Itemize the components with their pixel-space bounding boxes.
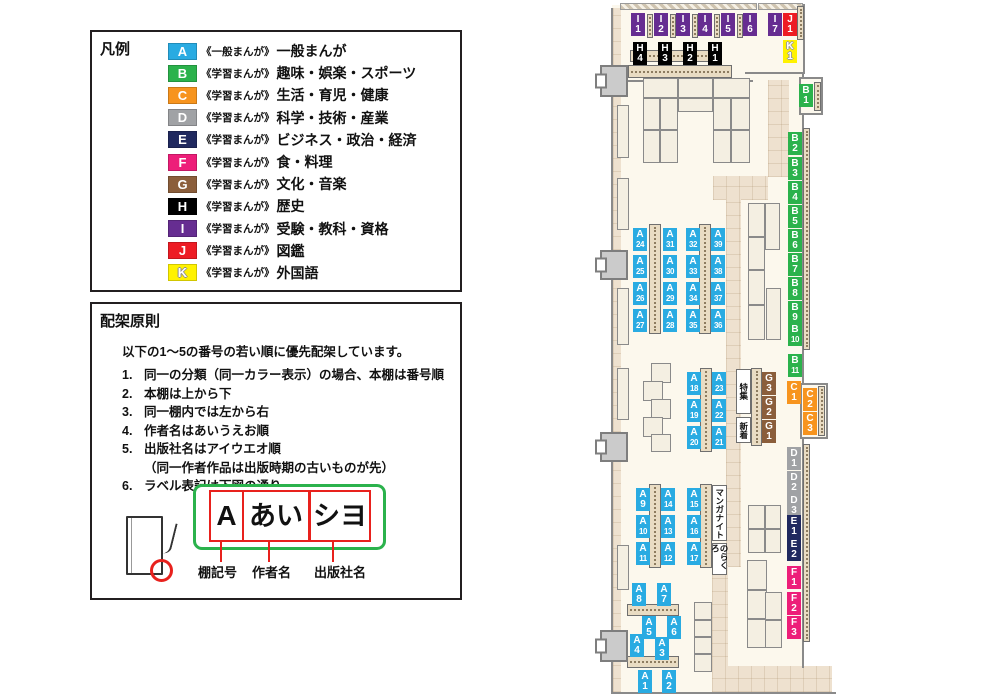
legend-category-label: 科学・技術・産業 — [277, 108, 389, 128]
map-sign: 新着 — [736, 417, 751, 443]
legend-row-A: A《一般まんが》一般まんが — [168, 40, 417, 62]
shelf-label-A39: A39 — [711, 228, 725, 251]
legend-panel: 凡例 A《一般まんが》一般まんがB《学習まんが》趣味・娯楽・スポーツC《学習まん… — [90, 30, 462, 292]
category-chip-J: J — [168, 242, 197, 259]
book-icon — [126, 516, 163, 575]
shelf-label-A24: A24 — [633, 228, 647, 251]
shelf-label-A2: A2 — [662, 670, 676, 693]
shelf-label-A22: A22 — [712, 399, 726, 422]
wall — [745, 72, 803, 74]
shelf-unit — [643, 130, 660, 163]
legend-row-D: D《学習まんが》科学・技術・産業 — [168, 107, 417, 129]
shelf-unit — [748, 203, 765, 237]
shelf-label-I7: I7 — [768, 13, 782, 36]
legend-category-label: ビジネス・政治・経済 — [277, 130, 417, 150]
shelf-unit — [617, 105, 629, 158]
shelf-label-A3: A3 — [655, 637, 669, 660]
category-chip-D: D — [168, 109, 197, 126]
category-chip-G: G — [168, 176, 197, 193]
shelf-label-A20: A20 — [687, 426, 701, 449]
shelf-unit — [748, 305, 765, 340]
shelf-label-A12: A12 — [661, 542, 675, 565]
shelf-unit — [713, 98, 731, 130]
shelf-label-E1: E1 — [787, 515, 801, 538]
legend-category-label: 文化・音楽 — [277, 174, 347, 194]
rule-text: ラベル表記は下図の通り — [144, 477, 282, 496]
legend-prefix: 《一般まんが》 — [201, 44, 275, 59]
shelf-unit — [617, 288, 629, 345]
category-chip-C: C — [168, 87, 197, 104]
shelf-label-A8: A8 — [632, 583, 646, 606]
shelf-label-D1: D1 — [787, 447, 801, 470]
legend-category-label: 受験・教科・資格 — [277, 219, 389, 239]
shelf-label-A16: A16 — [687, 515, 701, 538]
rule-item-5: 5.出版社名はアイウエオ順 — [122, 440, 452, 459]
bookshelf-strip — [649, 484, 661, 568]
bookshelf-strip — [803, 128, 810, 350]
shelf-label-B8: B8 — [788, 277, 802, 300]
shelf-unit — [694, 620, 712, 637]
shelf-unit — [766, 288, 781, 340]
shelf-label-I3: I3 — [676, 13, 690, 36]
shelf-label-A1: A1 — [638, 670, 652, 693]
shelf-label-A37: A37 — [711, 282, 725, 305]
shelf-label-A9: A9 — [636, 488, 650, 511]
shelf-unit — [713, 130, 731, 163]
legend-row-H: H《学習まんが》歴史 — [168, 195, 417, 217]
shelf-label-F2: F2 — [787, 592, 801, 615]
legend-category-label: 食・料理 — [277, 152, 333, 172]
rule-text: 作者名はあいうえお順 — [144, 422, 269, 441]
caption-line — [220, 540, 222, 562]
category-chip-B: B — [168, 65, 197, 82]
rule-text: 本棚は上から下 — [144, 385, 232, 404]
label-example-box-1: A — [209, 490, 244, 542]
category-chip-I: I — [168, 220, 197, 237]
shelf-unit — [678, 98, 713, 112]
shelf-label-A15: A15 — [687, 488, 701, 511]
shelf-label-A17: A17 — [687, 542, 701, 565]
shelf-label-G3: G3 — [762, 372, 776, 395]
shelf-unit — [748, 529, 765, 553]
shelf-label-A32: A32 — [686, 228, 700, 251]
bookshelf-strip — [699, 224, 711, 334]
shelf-unit — [731, 98, 750, 130]
shelf-label-A28: A28 — [663, 309, 677, 332]
shelf-label-A30: A30 — [663, 255, 677, 278]
bookshelf-strip — [814, 82, 821, 111]
rule-subtext: （同一作者作品は出版時期の古いものが先） — [144, 459, 452, 478]
category-chip-A: A — [168, 43, 197, 60]
rule-number: 6. — [122, 477, 144, 496]
shelf-label-F1: F1 — [787, 566, 801, 589]
legend-prefix: 《学習まんが》 — [201, 155, 275, 170]
shelf-unit — [643, 381, 663, 401]
rule-number: 1. — [122, 366, 144, 385]
label-example-box-3: シヨ — [309, 490, 371, 542]
shelf-label-A5: A5 — [642, 616, 656, 639]
shelf-unit — [747, 560, 767, 590]
wall-hatched — [620, 3, 757, 10]
floor-walkway — [712, 565, 728, 670]
shelf-label-B11: B11 — [788, 354, 802, 377]
shelf-unit — [617, 368, 629, 420]
legend-row-G: G《学習まんが》文化・音楽 — [168, 173, 417, 195]
legend-category-label: 生活・育児・健康 — [277, 85, 389, 105]
shelf-label-H4: H4 — [633, 42, 647, 65]
shelf-label-H2: H2 — [683, 42, 697, 65]
floor-map: 特集新着マンガナイトのらくろI1I2I3I4I5I6I7J1K1H4H3H2H1… — [595, 0, 845, 700]
shelf-label-D3: D3 — [787, 494, 801, 517]
rule-text: 同一の分類（同一カラー表示）の場合、本棚は番号順 — [144, 366, 444, 385]
bookshelf-strip — [797, 6, 804, 40]
shelf-unit — [765, 592, 782, 620]
shelf-label-A26: A26 — [633, 282, 647, 305]
door — [600, 65, 628, 97]
caption-3: 出版社名 — [314, 562, 366, 581]
bookshelf-strip — [700, 368, 712, 452]
legend-row-J: J《学習まんが》図鑑 — [168, 240, 417, 262]
shelf-unit — [765, 505, 781, 529]
shelf-label-C2: C2 — [803, 388, 817, 411]
shelf-unit — [748, 237, 765, 270]
legend-row-K: K《学習まんが》外国語 — [168, 262, 417, 284]
category-chip-H: H — [168, 198, 197, 215]
rule-item-3: 3.同一棚内では左から右 — [122, 403, 452, 422]
legend-row-C: C《学習まんが》生活・育児・健康 — [168, 84, 417, 106]
shelf-label-A31: A31 — [663, 228, 677, 251]
legend-prefix: 《学習まんが》 — [201, 132, 275, 147]
rule-text: 出版社名はアイウエオ順 — [144, 440, 281, 459]
shelf-label-B5: B5 — [788, 205, 802, 228]
legend-prefix: 《学習まんが》 — [201, 265, 275, 280]
legend-category-label: 趣味・娯楽・スポーツ — [277, 63, 417, 83]
rule-number: 3. — [122, 403, 144, 422]
shelf-label-B7: B7 — [788, 253, 802, 276]
shelf-unit — [651, 434, 671, 452]
caption-1: 棚記号 — [198, 562, 237, 581]
shelf-label-I4: I4 — [698, 13, 712, 36]
rules-panel: 配架原則 以下の1〜5の番号の若い順に優先配架しています。 1.同一の分類（同一… — [90, 302, 462, 600]
shelf-label-B10: B10 — [788, 323, 802, 346]
shelf-label-A27: A27 — [633, 309, 647, 332]
shelf-label-I1: I1 — [631, 13, 645, 36]
book-ribbon — [158, 521, 177, 555]
caption-2: 作者名 — [252, 562, 291, 581]
shelf-unit — [678, 78, 713, 98]
bookshelf-strip — [818, 386, 825, 436]
bookshelf-strip — [751, 368, 762, 446]
shelf-unit — [747, 619, 767, 648]
category-chip-F: F — [168, 154, 197, 171]
shelf-label-A6: A6 — [667, 616, 681, 639]
shelf-unit — [617, 178, 629, 230]
shelf-unit — [643, 78, 678, 98]
shelf-unit — [651, 399, 671, 419]
legend-category-label: 歴史 — [277, 196, 305, 216]
shelf-unit — [660, 130, 678, 163]
category-chip-K: K — [168, 264, 197, 281]
shelf-label-A19: A19 — [687, 399, 701, 422]
legend-prefix: 《学習まんが》 — [201, 88, 275, 103]
legend-prefix: 《学習まんが》 — [201, 243, 275, 258]
door — [600, 432, 628, 462]
shelf-label-A23: A23 — [712, 372, 726, 395]
legend-rows: A《一般まんが》一般まんがB《学習まんが》趣味・娯楽・スポーツC《学習まんが》生… — [168, 40, 417, 284]
caption-line — [268, 540, 270, 562]
shelf-label-A25: A25 — [633, 255, 647, 278]
legend-category-label: 外国語 — [277, 263, 319, 283]
shelf-label-A34: A34 — [686, 282, 700, 305]
shelf-unit — [765, 529, 781, 553]
shelf-label-A4: A4 — [630, 634, 644, 657]
shelf-unit — [694, 637, 712, 654]
shelf-label-G2: G2 — [762, 396, 776, 419]
map-sign: マンガナイト — [712, 485, 727, 541]
shelf-unit — [765, 620, 782, 648]
shelf-label-A35: A35 — [686, 309, 700, 332]
shelf-unit — [617, 545, 629, 590]
map-sign: のらくろ — [712, 543, 727, 575]
legend-prefix: 《学習まんが》 — [201, 177, 275, 192]
shelf-label-E2: E2 — [787, 538, 801, 561]
shelf-label-A13: A13 — [661, 515, 675, 538]
door — [600, 250, 628, 280]
legend-prefix: 《学習まんが》 — [201, 221, 275, 236]
bookshelf-strip — [649, 224, 661, 334]
map-sign: 特集 — [736, 369, 751, 414]
floor-walkway — [768, 80, 789, 177]
shelf-label-B9: B9 — [788, 301, 802, 324]
floor-walkway — [713, 176, 768, 200]
page: { "legend": { "title": "凡例", "items": [ … — [0, 0, 1000, 700]
shelf-unit — [731, 130, 750, 163]
shelf-label-A36: A36 — [711, 309, 725, 332]
shelf-label-A38: A38 — [711, 255, 725, 278]
rule-item-1: 1.同一の分類（同一カラー表示）の場合、本棚は番号順 — [122, 366, 452, 385]
rule-item-2: 2.本棚は上から下 — [122, 385, 452, 404]
wall — [611, 8, 613, 694]
shelf-unit — [747, 590, 767, 619]
shelf-label-A10: A10 — [636, 515, 650, 538]
legend-category-label: 図鑑 — [277, 241, 305, 261]
category-chip-E: E — [168, 131, 197, 148]
shelf-label-A11: A11 — [636, 542, 650, 565]
rules-list: 1.同一の分類（同一カラー表示）の場合、本棚は番号順2.本棚は上から下3.同一棚… — [122, 366, 452, 496]
shelf-label-B4: B4 — [788, 181, 802, 204]
rules-title: 配架原則 — [100, 310, 452, 331]
legend-prefix: 《学習まんが》 — [201, 110, 275, 125]
rule-item-6: 6.ラベル表記は下図の通り — [122, 477, 452, 496]
shelf-unit — [694, 654, 712, 672]
shelf-label-A29: A29 — [663, 282, 677, 305]
bookshelf-strip — [647, 14, 653, 38]
shelf-label-F3: F3 — [787, 616, 801, 639]
shelf-label-B6: B6 — [788, 229, 802, 252]
door — [600, 630, 628, 662]
shelf-unit — [748, 505, 765, 529]
shelf-label-C3: C3 — [803, 412, 817, 435]
legend-row-F: F《学習まんが》食・料理 — [168, 151, 417, 173]
legend-row-B: B《学習まんが》趣味・娯楽・スポーツ — [168, 62, 417, 84]
shelf-label-A33: A33 — [686, 255, 700, 278]
shelf-label-D2: D2 — [787, 471, 801, 494]
shelf-label-I6: I6 — [743, 13, 757, 36]
floor-walkway — [712, 666, 832, 692]
shelf-label-G1: G1 — [762, 420, 776, 443]
shelf-label-I2: I2 — [654, 13, 668, 36]
shelf-unit — [651, 363, 671, 383]
shelf-label-J1: J1 — [783, 13, 797, 36]
shelf-label-B1: B1 — [799, 84, 813, 107]
label-example-box-2: あい — [242, 490, 310, 542]
shelf-unit — [765, 203, 780, 250]
bookshelf-strip — [628, 65, 732, 78]
shelf-label-A21: A21 — [712, 426, 726, 449]
shelf-unit — [660, 98, 678, 130]
legend-row-I: I《学習まんが》受験・教科・資格 — [168, 218, 417, 240]
shelf-unit — [748, 270, 765, 305]
rule-text: 同一棚内では左から右 — [144, 403, 269, 422]
rule-number: 2. — [122, 385, 144, 404]
legend-prefix: 《学習まんが》 — [201, 199, 275, 214]
shelf-label-A7: A7 — [657, 583, 671, 606]
legend-category-label: 一般まんが — [277, 41, 347, 61]
shelf-label-I5: I5 — [721, 13, 735, 36]
rules-intro: 以下の1〜5の番号の若い順に優先配架しています。 — [122, 341, 452, 360]
bookshelf-strip — [803, 444, 810, 642]
shelf-unit — [694, 602, 712, 620]
bookshelf-strip — [714, 14, 720, 38]
shelf-label-K1: K1 — [783, 40, 797, 63]
shelf-unit — [643, 98, 660, 130]
legend-prefix: 《学習まんが》 — [201, 66, 275, 81]
legend-row-E: E《学習まんが》ビジネス・政治・経済 — [168, 129, 417, 151]
shelf-label-B2: B2 — [788, 132, 802, 155]
bookshelf-strip — [627, 656, 679, 668]
rule-number: 4. — [122, 422, 144, 441]
shelf-label-C1: C1 — [787, 381, 801, 404]
shelf-label-B3: B3 — [788, 157, 802, 180]
rule-item-4: 4.作者名はあいうえお順 — [122, 422, 452, 441]
caption-line — [332, 540, 334, 562]
shelf-unit — [713, 78, 750, 98]
shelf-label-H3: H3 — [658, 42, 672, 65]
shelf-label-A14: A14 — [661, 488, 675, 511]
label-position-circle — [150, 559, 173, 582]
rule-number: 5. — [122, 440, 144, 459]
shelf-label-H1: H1 — [708, 42, 722, 65]
shelf-label-A18: A18 — [687, 372, 701, 395]
